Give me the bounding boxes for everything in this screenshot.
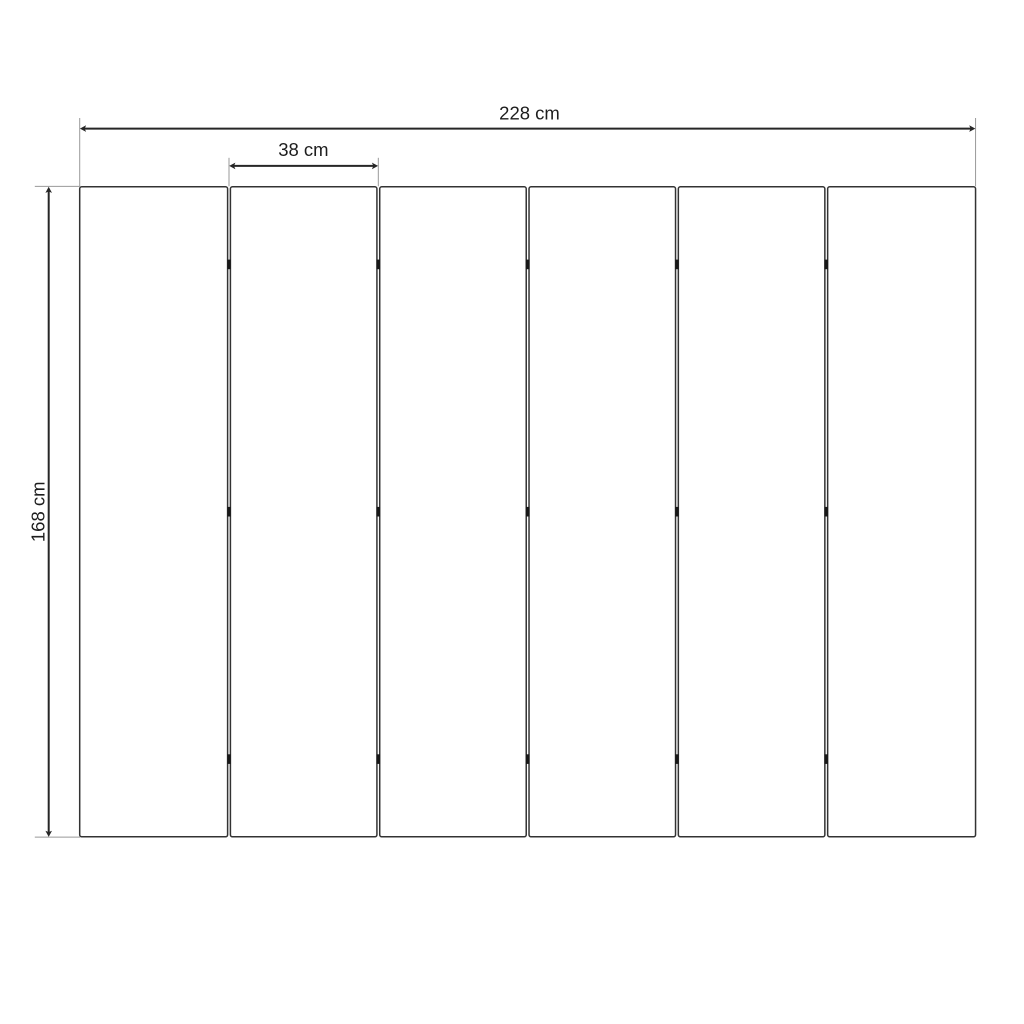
svg-text:168 cm: 168 cm <box>28 481 49 542</box>
svg-text:228 cm: 228 cm <box>499 103 560 124</box>
svg-text:38 cm: 38 cm <box>278 139 328 160</box>
